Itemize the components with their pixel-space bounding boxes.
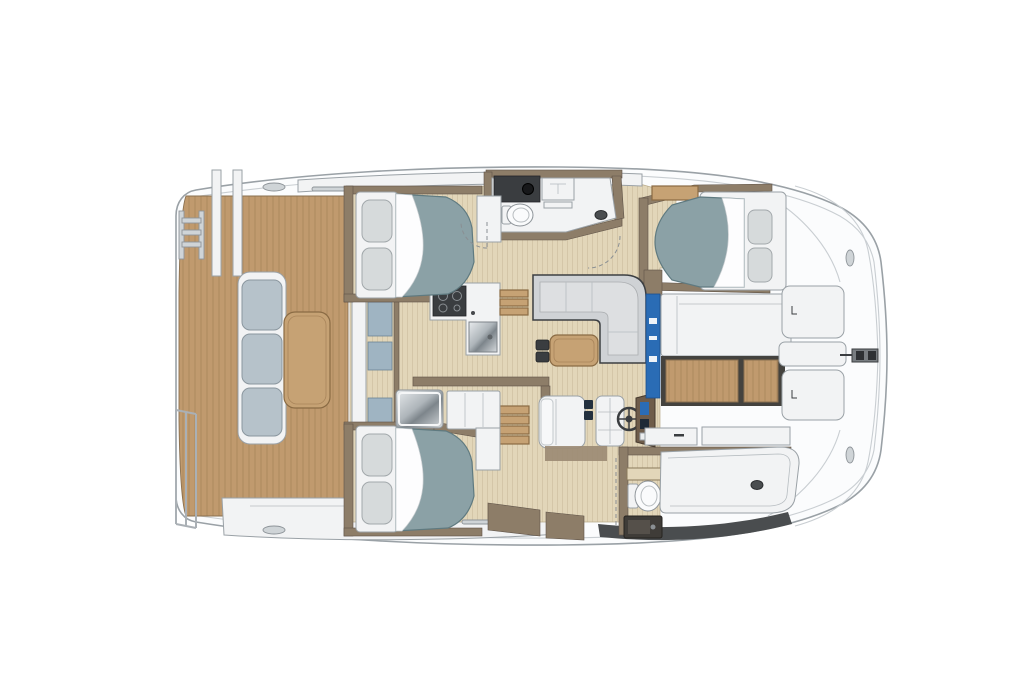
pillow: [362, 200, 392, 242]
deck-fitting-oval: [263, 183, 285, 191]
targa-post: [212, 170, 221, 276]
cockpit-table: [284, 312, 330, 408]
fwd-cockpit-step: [702, 427, 790, 445]
shower-drain: [751, 481, 763, 490]
saloon-stool: [536, 340, 549, 350]
saloon-stool: [536, 352, 549, 362]
pillow: [362, 482, 392, 524]
galley-sink: [469, 322, 497, 352]
storage-locker: [624, 516, 662, 538]
pillow: [362, 248, 392, 290]
cockpit-bench-cushion: [242, 280, 282, 330]
foredeck-center-locker: [779, 342, 846, 366]
starboard-aft-cabin-bed: [356, 426, 474, 532]
port-aft-cabin-bed: [356, 192, 474, 298]
floor-plan-svg: [0, 0, 1024, 683]
shower-drain: [595, 211, 607, 220]
pillow: [748, 210, 772, 244]
head-counter: [645, 428, 697, 445]
helm-step: [545, 446, 607, 461]
counter-fitting: [471, 311, 475, 315]
instrument-box: [584, 400, 593, 409]
bow-cleat: [846, 447, 854, 463]
cabin-cabinet: [476, 428, 500, 470]
forward-cockpit-teak: [744, 360, 778, 402]
forward-cockpit-teak: [666, 360, 738, 402]
nav-seat: [539, 396, 585, 448]
companionway-steps-port: [500, 290, 528, 315]
vanity-basin: [523, 184, 534, 195]
cockpit-storage-module: [447, 391, 500, 429]
saloon-aft-wall: [413, 377, 549, 386]
aft-door-glass: [368, 342, 392, 370]
helm-seat: [596, 396, 624, 446]
sink-faucet: [488, 335, 493, 340]
bow-cleat: [846, 250, 854, 266]
head-shelf: [627, 468, 663, 480]
pillow: [748, 248, 772, 282]
targa-post: [233, 170, 242, 276]
cockpit-grill-module: [396, 390, 443, 428]
aft-sliding-door: [352, 298, 366, 428]
forward-cabin-bed: [655, 192, 786, 290]
floor-plan: [0, 0, 1024, 683]
cabin-closet: [546, 512, 584, 540]
chartplotter-screen: [640, 402, 649, 415]
cockpit-bench-cushion: [242, 334, 282, 384]
deck-fitting-oval: [263, 526, 285, 534]
instrument-box: [584, 411, 593, 420]
foredeck-hatch: [782, 286, 844, 338]
cabin-cabinet: [477, 196, 501, 242]
port-head-toilet: [502, 204, 533, 226]
handrail: [312, 187, 346, 191]
counter-handle: [674, 434, 684, 437]
forward-cabin-wardrobe: [652, 186, 698, 200]
pillow: [362, 434, 392, 476]
foredeck-hatch: [782, 370, 844, 420]
shower-tray: [660, 447, 799, 513]
starboard-head-toilet: [628, 481, 661, 511]
sink-shelf: [544, 202, 572, 208]
forward-cockpit-bench: [661, 294, 791, 356]
saloon-front-door: [646, 294, 660, 398]
cockpit-bench-cushion: [242, 388, 282, 436]
aft-door-glass: [368, 302, 392, 336]
